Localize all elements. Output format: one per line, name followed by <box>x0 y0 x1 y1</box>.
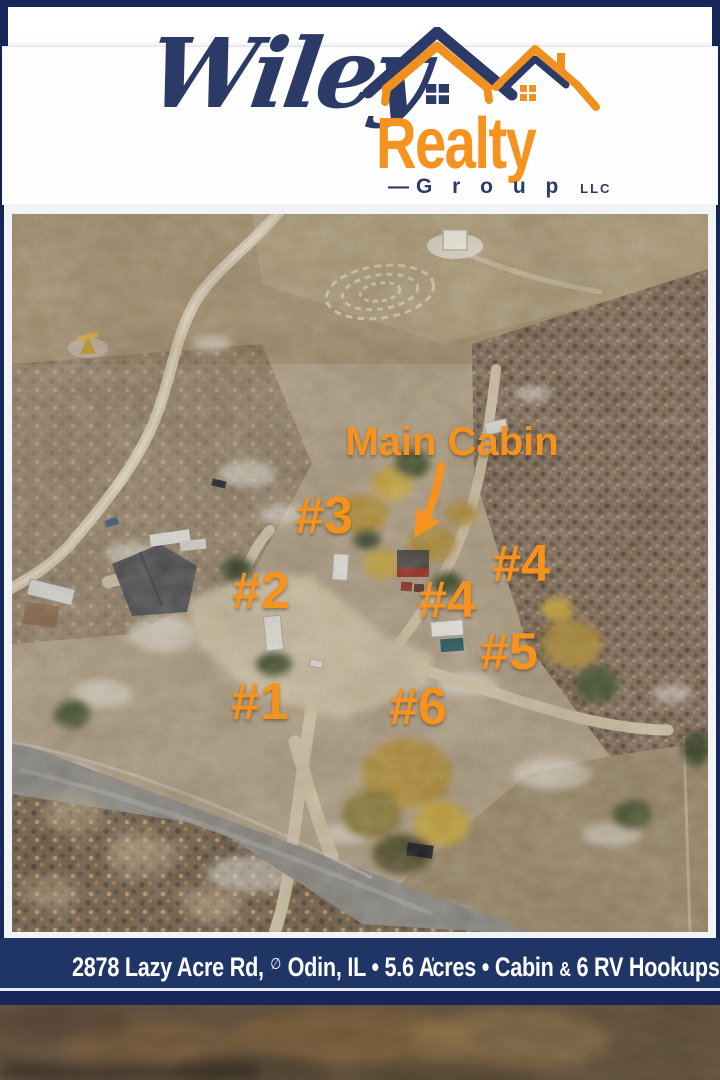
acres-value: 5.6 A <box>385 952 435 982</box>
rv-site-marker-1: #1 <box>231 672 289 732</box>
rv-site-marker-2: #2 <box>232 561 290 621</box>
bullet-separator: • <box>371 952 378 982</box>
brand-main-name: Realty <box>376 103 535 185</box>
acres-unit: cres <box>433 952 476 982</box>
photo-annotations: Main Cabin #1 #2 #3 #4 #4 #5 #6 <box>12 214 708 932</box>
brand-suffix: LLC <box>580 181 611 196</box>
bottom-border <box>0 991 720 1005</box>
feature-hookups: 6 RV Hookups <box>576 952 719 982</box>
rv-site-marker-6: #6 <box>389 677 447 737</box>
rv-site-marker-4-upper: #4 <box>492 534 550 594</box>
main-cabin-label: Main Cabin <box>345 420 558 465</box>
brand-subtitle: —G r o u p LLC <box>388 175 611 199</box>
top-border <box>0 0 720 7</box>
rv-site-marker-5: #5 <box>480 622 538 682</box>
aerial-photo: Main Cabin #1 #2 #3 #4 #4 #5 #6 <box>12 214 708 932</box>
address-text: 2878 Lazy Acre Rd, ∅ Odin, IL • 5.6 Aʹcr… <box>72 938 648 988</box>
city-state: Odin, IL <box>288 952 366 982</box>
location-glyph-icon: ∅ <box>270 956 281 973</box>
street-address: 2878 Lazy Acre Rd, <box>72 952 264 982</box>
real-estate-flyer: Wiley Realty —G <box>0 0 720 1080</box>
photo-frame: Main Cabin #1 #2 #3 #4 #4 #5 #6 <box>4 204 716 938</box>
feature-cabin: Cabin <box>495 952 554 982</box>
rv-site-marker-4-lower: #4 <box>418 570 476 630</box>
big-house-window <box>426 84 449 104</box>
address-bar: 2878 Lazy Acre Rd, ∅ Odin, IL • 5.6 Aʹcr… <box>0 938 720 988</box>
rv-site-marker-3: #3 <box>295 486 353 546</box>
bullet-separator: • <box>482 952 489 982</box>
logo-panel: Wiley Realty —G <box>2 46 718 205</box>
main-cabin-arrow-icon <box>406 460 452 546</box>
bottom-photo-strip <box>0 1005 720 1080</box>
ampersand: & <box>559 959 570 981</box>
brand-sub-name: G r o u p <box>416 175 565 198</box>
brand-dash: — <box>388 175 416 198</box>
small-house-window <box>520 85 536 101</box>
